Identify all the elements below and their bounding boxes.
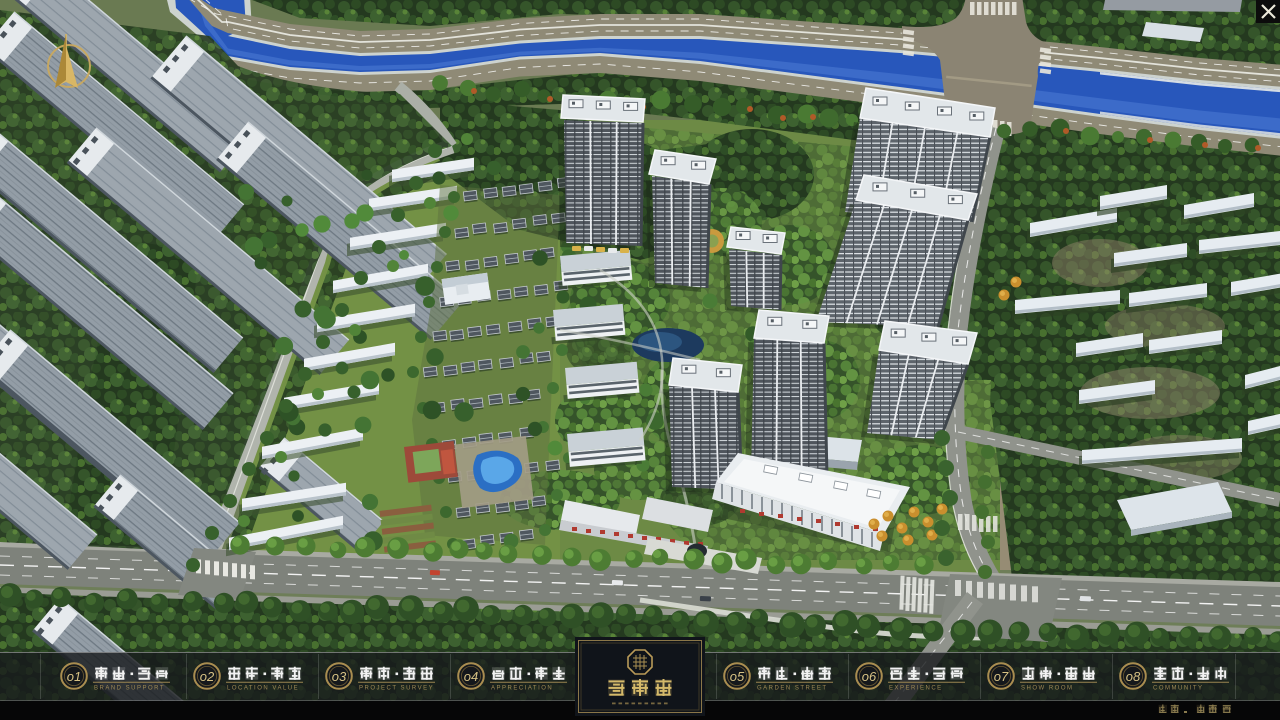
svg-text:o1: o1 (67, 669, 81, 684)
svg-text:SHOW ROOM: SHOW ROOM (1021, 686, 1074, 692)
svg-text:BRAND SUPPORT: BRAND SUPPORT (94, 686, 165, 692)
svg-text:APPRECIATION: APPRECIATION (491, 686, 553, 692)
svg-text:GARDEN STREET: GARDEN STREET (757, 686, 828, 692)
svg-text:o8: o8 (1126, 669, 1141, 684)
svg-text:o2: o2 (200, 669, 215, 684)
svg-text:o5: o5 (730, 669, 745, 684)
svg-text:o4: o4 (464, 669, 478, 684)
svg-text:LOCATION VALUE: LOCATION VALUE (227, 686, 299, 692)
svg-text:o6: o6 (862, 669, 877, 684)
svg-text:PROJECT SURVEY: PROJECT SURVEY (359, 686, 434, 692)
svg-text:EXPERIENCE: EXPERIENCE (889, 686, 943, 692)
svg-text:o3: o3 (332, 669, 347, 684)
svg-text:COMMUNITY: COMMUNITY (1153, 686, 1204, 692)
svg-text:o7: o7 (994, 669, 1009, 684)
